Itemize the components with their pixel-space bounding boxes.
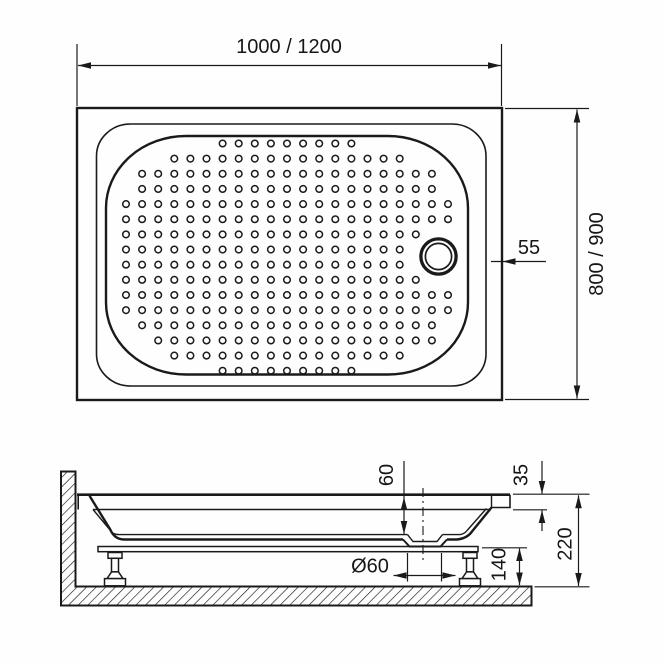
leg-left (105, 553, 126, 586)
dimension-basin-depth (401, 461, 408, 534)
dimension-rim-height-label: 35 (511, 464, 533, 486)
dimension-frame-height-label: 140 (489, 548, 511, 581)
arrow-down (516, 573, 523, 586)
dimension-drain-offset-label: 55 (518, 237, 540, 259)
dimension-basin-depth-label: 60 (376, 464, 398, 486)
arrow-left (78, 62, 91, 69)
arrow-up (516, 548, 523, 561)
arrow-down (575, 573, 582, 586)
drain-top-view (421, 239, 456, 274)
shower-tray-diagram: 1000 / 1200 800 / 900 55 (0, 0, 663, 663)
dimension-depth-label: 800 / 900 (586, 212, 608, 295)
arrow-right (488, 62, 501, 69)
arrow-up (575, 495, 582, 508)
arrow-down (401, 521, 408, 534)
arrow-up (401, 497, 408, 510)
arrow-right (443, 572, 456, 579)
arrow-up (539, 510, 546, 523)
dimension-width-label: 1000 / 1200 (236, 36, 342, 58)
technical-drawing-canvas: 1000 / 1200 800 / 900 55 (0, 0, 663, 663)
arrow-left (503, 258, 516, 265)
dimension-total-height-label: 220 (555, 527, 577, 560)
arrow-down (539, 481, 546, 494)
arrow-up (574, 110, 581, 123)
section-view: 60 35 220 140 (61, 461, 590, 606)
dimension-drain-diameter-label: Ø60 (351, 556, 389, 578)
arrow-down (574, 386, 581, 399)
arrow-left (394, 572, 407, 579)
leg-right (460, 553, 481, 586)
top-view: 1000 / 1200 800 / 900 55 (77, 36, 608, 400)
dimension-drain-diameter (394, 553, 456, 582)
